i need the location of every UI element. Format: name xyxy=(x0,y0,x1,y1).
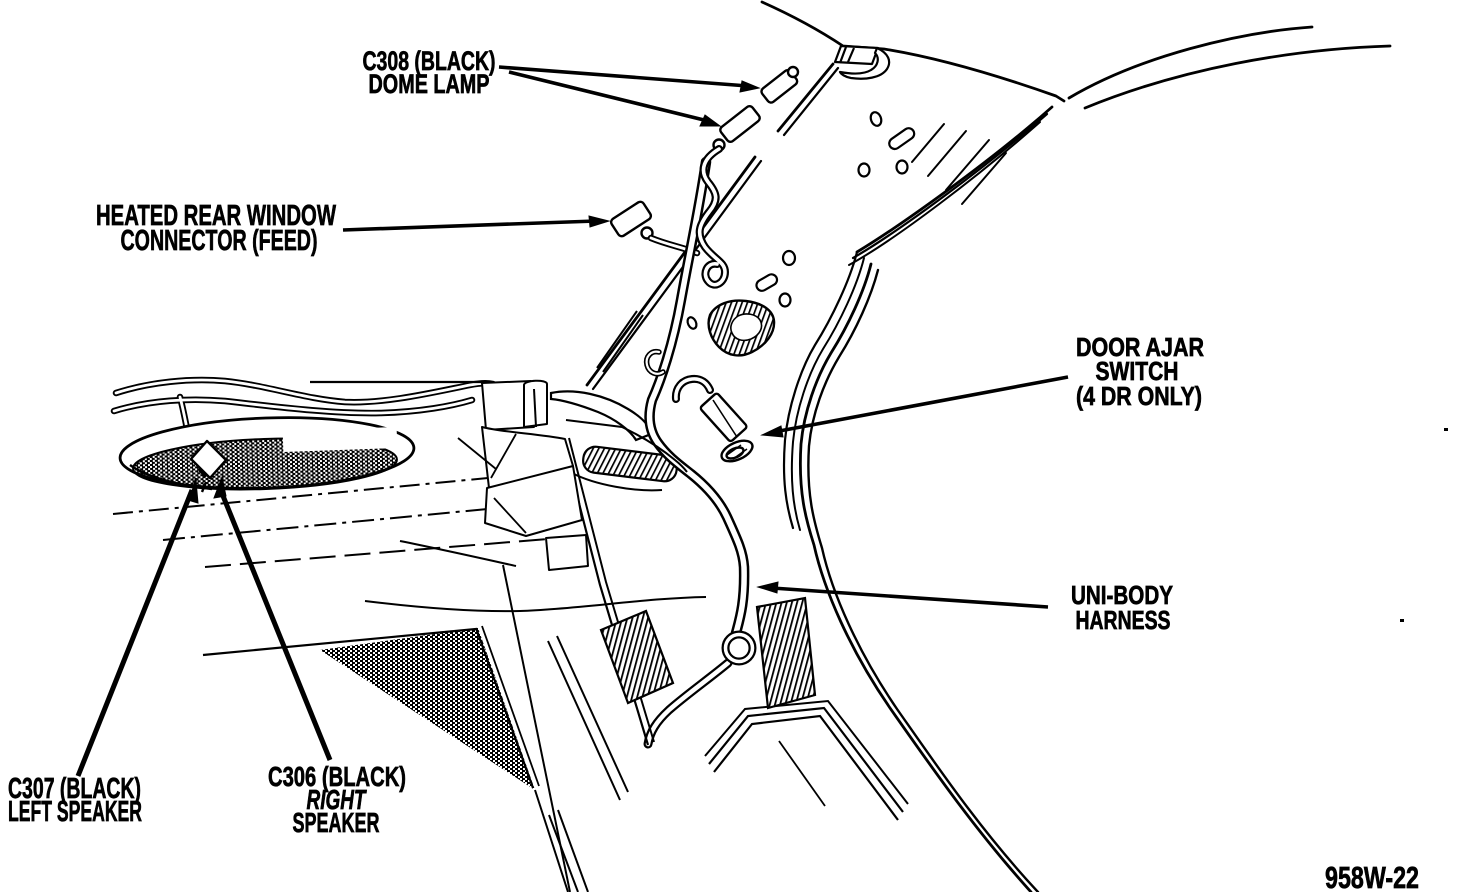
svg-text:LEFT SPEAKER: LEFT SPEAKER xyxy=(8,796,142,828)
svg-text:958W-22: 958W-22 xyxy=(1325,860,1419,892)
svg-text:DOME LAMP: DOME LAMP xyxy=(369,69,490,99)
svg-text:HARNESS: HARNESS xyxy=(1076,605,1171,635)
svg-text:CONNECTOR (FEED): CONNECTOR (FEED) xyxy=(121,225,318,257)
svg-text:SPEAKER: SPEAKER xyxy=(293,807,380,838)
svg-text:(4 DR ONLY): (4 DR ONLY) xyxy=(1076,381,1202,411)
